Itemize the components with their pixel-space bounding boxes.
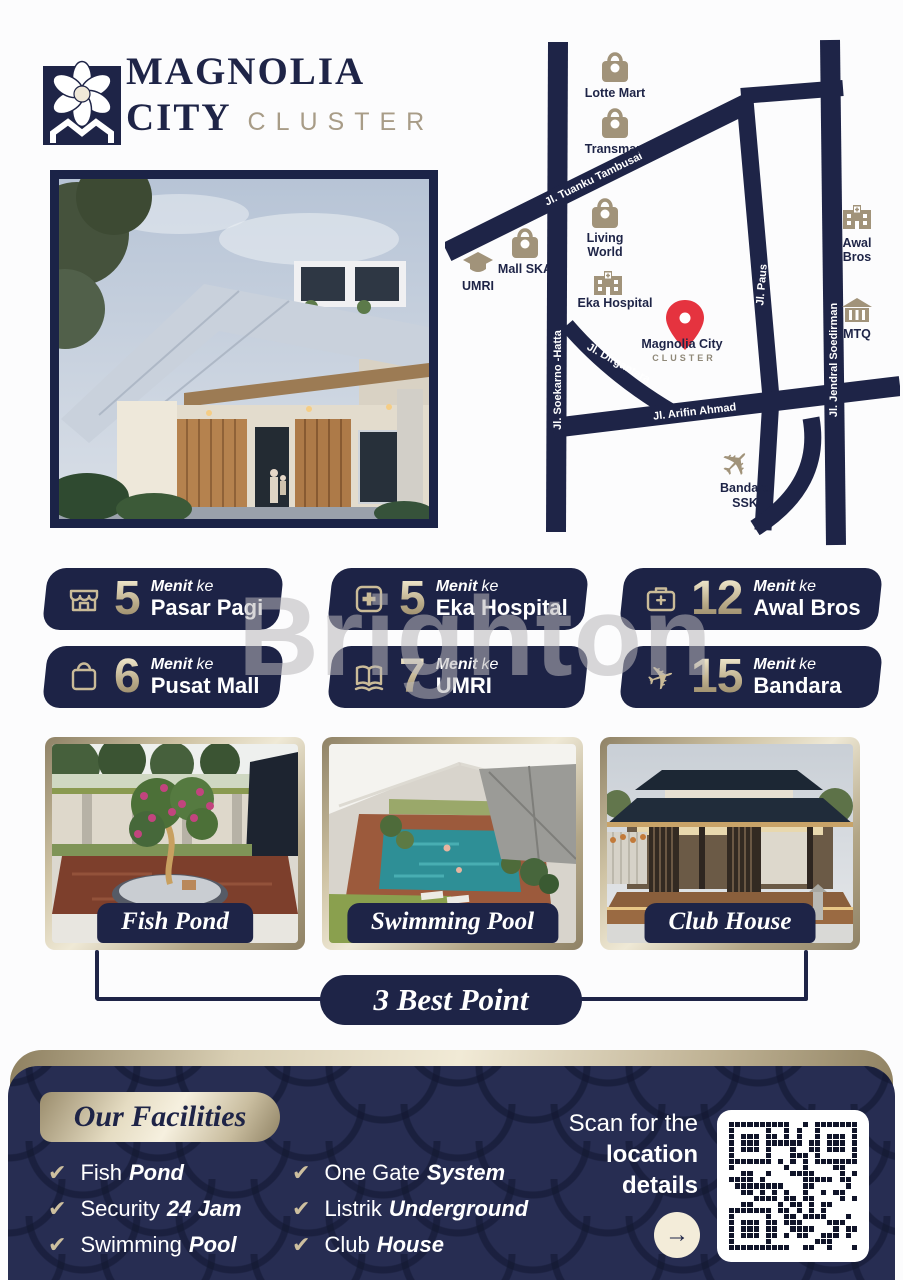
- badge-awal-bros: 12 Menitke Awal Bros: [622, 568, 880, 630]
- brand-line1: MAGNOLIA: [126, 52, 434, 91]
- poi-eka-hospital: Eka Hospital: [577, 271, 652, 310]
- qr-modules: [729, 1122, 857, 1250]
- shopping-bag-icon: [602, 110, 628, 138]
- checkmark-icon: ✔: [292, 1232, 310, 1258]
- svg-text:Eka Hospital: Eka Hospital: [577, 296, 652, 310]
- brand-line3: CLUSTER: [248, 108, 435, 137]
- facility-item: ✔ ClubHouse: [292, 1232, 444, 1258]
- svg-text:World: World: [587, 245, 622, 259]
- graduation-cap-icon: [463, 252, 493, 272]
- location-map: Jl. Tuanku Tambusai Jl. Soekarno -Hatta …: [445, 30, 900, 548]
- svg-text:Awal: Awal: [843, 236, 872, 250]
- travel-time-badges: 5 Menitke Pasar Pagi 5 Menitke: [45, 568, 880, 708]
- checkmark-icon: ✔: [292, 1160, 310, 1186]
- poi-awal-bros: Awal Bros: [843, 205, 872, 264]
- checkmark-icon: ✔: [292, 1196, 310, 1222]
- club-house-photo: Club House: [600, 737, 860, 950]
- road-label-soekarno: Jl. Soekarno -Hatta: [552, 329, 564, 430]
- best-point-banner: 3 Best Point: [320, 975, 582, 1025]
- minutes-value: 12: [691, 575, 742, 623]
- svg-text:Magnolia City: Magnolia City: [641, 337, 722, 351]
- arrow-right-icon: →: [654, 1212, 700, 1258]
- scan-text: Scan for the location details: [438, 1108, 698, 1201]
- poi-mall-ska: Mall SKA: [498, 230, 552, 276]
- facility-item: ✔ Security24 Jam: [48, 1196, 242, 1222]
- storefront-icon: [65, 581, 103, 617]
- svg-text:Bros: Bros: [843, 250, 872, 264]
- hospital-building-icon: [594, 271, 622, 295]
- svg-text:Bandara: Bandara: [720, 481, 771, 495]
- checkmark-icon: ✔: [48, 1160, 66, 1186]
- facility-item: ✔ FishPond: [48, 1160, 184, 1186]
- svg-text:Lotte Mart: Lotte Mart: [585, 86, 646, 100]
- photo-caption: Club House: [645, 903, 816, 943]
- photo-caption: Fish Pond: [97, 903, 253, 943]
- minutes-value: 5: [399, 575, 425, 623]
- house-render-photo: [50, 170, 438, 528]
- badge-umri: 7 Menitke UMRI: [330, 646, 586, 708]
- qr-code: [717, 1110, 869, 1262]
- svg-text:Mall SKA: Mall SKA: [498, 262, 552, 276]
- minutes-value: 6: [114, 653, 140, 701]
- swimming-pool-photo: Swimming Pool: [322, 737, 583, 950]
- poi-mtq: MTQ: [842, 298, 872, 341]
- medical-cross-icon: [350, 581, 388, 617]
- shopping-bag-icon: [592, 200, 618, 228]
- minutes-value: 15: [691, 653, 742, 701]
- badge-place: Eka Hospital: [436, 596, 568, 619]
- map-pin-magnolia-city: Magnolia City CLUSTER: [641, 300, 722, 363]
- facility-item: ✔ SwimmingPool: [48, 1232, 237, 1258]
- badge-pasar-pagi: 5 Menitke Pasar Pagi: [45, 568, 281, 630]
- medical-bag-icon: [642, 581, 680, 617]
- shopping-bag-icon: [512, 230, 538, 258]
- svg-text:MTQ: MTQ: [843, 327, 871, 341]
- airplane-icon: ✈: [642, 661, 680, 694]
- svg-text:UMRI: UMRI: [462, 279, 494, 293]
- badge-place: Awal Bros: [753, 596, 860, 619]
- magnolia-logo-icon: [43, 50, 121, 145]
- svg-text:Transmart: Transmart: [585, 142, 646, 156]
- svg-text:CLUSTER: CLUSTER: [652, 353, 716, 363]
- facilities-title: Our Facilities: [40, 1092, 280, 1142]
- bracket-line-right: [804, 950, 808, 1000]
- facilities-panel: Our Facilities ✔ FishPond ✔ Security24 J…: [8, 1066, 895, 1280]
- poi-lotte-mart: Lotte Mart: [585, 54, 646, 100]
- badge-eka-hospital: 5 Menitke Eka Hospital: [330, 568, 586, 630]
- fish-pond-photo: Fish Pond: [45, 737, 305, 950]
- brand-line2: CITY: [126, 95, 232, 140]
- brand-title: MAGNOLIA CITY CLUSTER: [126, 52, 434, 140]
- brochure-page: MAGNOLIA CITY CLUSTER: [0, 0, 903, 1280]
- checkmark-icon: ✔: [48, 1232, 66, 1258]
- minutes-value: 5: [114, 575, 140, 623]
- svg-text:SSK: SSK: [732, 496, 758, 510]
- poi-transmart: Transmart: [585, 110, 646, 156]
- bracket-line-left: [95, 950, 99, 1000]
- checkmark-icon: ✔: [48, 1196, 66, 1222]
- badge-place: Pasar Pagi: [151, 596, 264, 619]
- badge-place: UMRI: [436, 674, 499, 697]
- road-label-soedirman: Jl. Jendral Soedirman: [828, 303, 840, 418]
- shopping-bag-icon: [65, 659, 103, 695]
- map-roads: [447, 40, 900, 545]
- open-book-icon: [350, 659, 388, 695]
- minutes-value: 7: [399, 653, 425, 701]
- poi-living-world: Living World: [587, 200, 624, 259]
- landmark-building-icon: [842, 298, 872, 322]
- photo-caption: Swimming Pool: [347, 903, 558, 943]
- hospital-building-icon: [843, 205, 871, 229]
- badge-pusat-mall: 6 Menitke Pusat Mall: [45, 646, 281, 708]
- badge-place: Pusat Mall: [151, 674, 260, 697]
- shopping-bag-icon: [602, 54, 628, 82]
- poi-umri: UMRI: [462, 252, 494, 293]
- svg-text:Living: Living: [587, 231, 624, 245]
- badge-bandara: ✈ 15 Menitke Bandara: [622, 646, 880, 708]
- badge-place: Bandara: [753, 674, 841, 697]
